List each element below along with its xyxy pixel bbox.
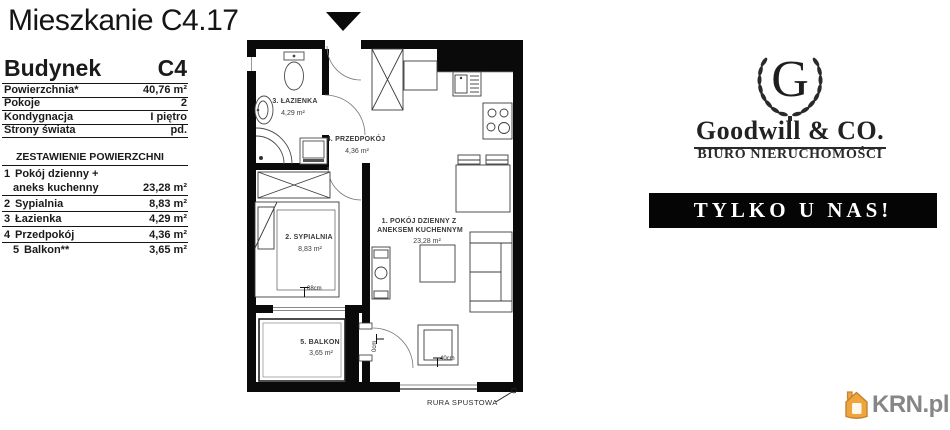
table-row: Kondygnacja I piętro [2, 111, 188, 125]
house-icon [843, 389, 870, 420]
row-label: Pokoje [4, 97, 40, 109]
room-area-bathroom: 4,29 m² [223, 110, 363, 117]
building-label: Budynek [4, 55, 101, 82]
row-value: 4,29 m² [149, 213, 187, 225]
table-row: Powierzchnia* 40,76 m² [2, 84, 188, 98]
page-title: Mieszkanie C4.17 [8, 4, 238, 38]
downpipe-label: RURA SPUSTOWA [427, 398, 498, 407]
room-area-bedroom: 8,83 m² [240, 246, 380, 253]
row-label: Pokój dzienny + [15, 168, 187, 180]
areas-table: ZESTAWIENIE POWIERZCHNI 1 Pokój dzienny … [2, 149, 188, 257]
dining-set [456, 155, 510, 212]
watermark-text: KRN.pl [872, 391, 949, 419]
room-area-balcony: 3,65 m² [251, 350, 391, 357]
row-label: Przedpokój [15, 229, 149, 241]
row-label: Kondygnacja [4, 111, 73, 123]
brand-name: Goodwill & CO. [690, 116, 890, 149]
flyer-canvas: Mieszkanie C4.17 Budynek C4 Powierzchnia… [0, 0, 950, 430]
room-label-balcony: 5. BALKON [250, 339, 390, 346]
table-row: 1 Pokój dzienny + aneks kuchenny 23,28 m… [2, 166, 188, 196]
table-row: 5 Balkon** 3,65 m² [2, 243, 188, 258]
dim-balcony-door: 0cm [372, 341, 378, 352]
room-label-hall: 4. PRZEDPOKÓJ [286, 136, 426, 143]
areas-header: ZESTAWIENIE POWIERZCHNI [2, 149, 188, 166]
row-label2: aneks kuchenny [2, 182, 143, 194]
brand-subtitle: BIURO NIERUCHOMOŚCI [690, 147, 890, 163]
row-label: Strony świata [4, 124, 76, 136]
row-value: 3,65 m² [149, 244, 187, 256]
entrance-arrow-icon [326, 12, 361, 31]
row-label: Łazienka [15, 213, 149, 225]
row-num: 5 [2, 244, 24, 256]
room-area-hall: 4,36 m² [287, 148, 427, 155]
table-row: 3 Łazienka 4,29 m² [2, 212, 188, 228]
details-table: Budynek C4 Powierzchnia* 40,76 m² Pokoje… [2, 56, 188, 138]
table-row: Strony świata pd. [2, 125, 188, 139]
table-row: 2 Sypialnia 8,83 m² [2, 196, 188, 212]
row-num: 4 [2, 229, 15, 241]
row-num: 3 [2, 213, 15, 225]
kitchen-fixtures [437, 72, 513, 139]
row-value: 4,36 m² [149, 229, 187, 241]
brand-logo: G [748, 40, 832, 122]
building-value: C4 [158, 55, 187, 82]
watermark: KRN.pl [843, 389, 949, 420]
row-label: Balkon** [24, 244, 149, 256]
table-row: 4 Przedpokój 4,36 m² [2, 227, 188, 243]
row-value: 23,28 m² [143, 182, 187, 194]
table-row: Pokoje 2 [2, 98, 188, 112]
row-num: 2 [2, 198, 15, 210]
room-label-bathroom: 3. ŁAZIENKA [225, 98, 365, 105]
row-value: pd. [171, 124, 188, 136]
dim-bedroom-window: 88cm [307, 286, 322, 292]
building-row: Budynek C4 [2, 56, 188, 84]
row-num: 1 [2, 168, 15, 180]
row-label: Powierzchnia* [4, 84, 79, 96]
brand-banner: TYLKO U NAS! [649, 193, 937, 228]
room-label-bedroom: 2. SYPIALNIA [239, 234, 379, 241]
dim-living-window: 40cm [440, 356, 455, 362]
room-label-living-2: ANEKSEM KUCHENNYM [350, 227, 490, 234]
brand-monogram: G [771, 51, 809, 108]
room-label-living: 1. POKÓJ DZIENNY Z [349, 218, 489, 225]
row-label: Sypialnia [15, 198, 149, 210]
row-value: I piętro [150, 111, 187, 123]
row-value: 40,76 m² [143, 84, 187, 96]
living-furniture [372, 232, 512, 365]
row-value: 8,83 m² [149, 198, 187, 210]
row-value: 2 [181, 97, 187, 109]
